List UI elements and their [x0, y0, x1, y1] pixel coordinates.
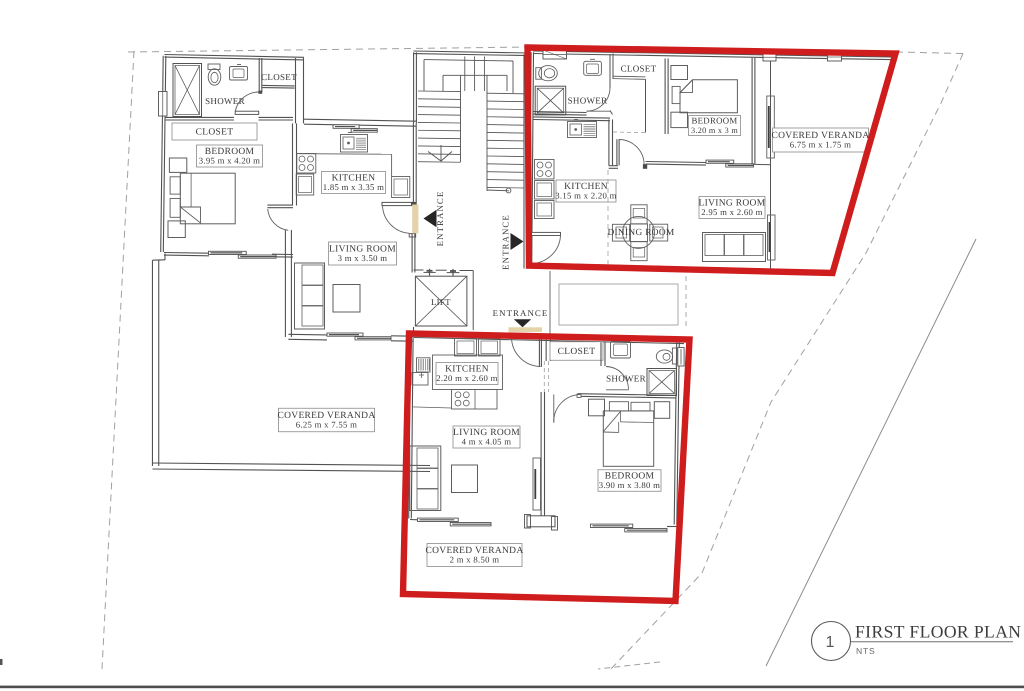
svg-text:3.15 m x 2.20 m: 3.15 m x 2.20 m [555, 191, 616, 201]
svg-text:1.85 m x 3.35 m: 1.85 m x 3.35 m [323, 182, 384, 192]
svg-text:SHOWER: SHOWER [205, 96, 245, 106]
svg-text:2.20 m x 2.60 m: 2.20 m x 2.60 m [436, 373, 497, 383]
svg-text:6.25 m x 7.55 m: 6.25 m x 7.55 m [296, 420, 357, 430]
svg-text:3.20 m x 3 m: 3.20 m x 3 m [691, 126, 738, 135]
svg-text:ENTRANCE: ENTRANCE [493, 308, 549, 318]
svg-text:6.75 m x 1.75 m: 6.75 m x 1.75 m [790, 140, 851, 150]
svg-text:CLOSET: CLOSET [558, 347, 596, 357]
svg-text:2 m x 8.50 m: 2 m x 8.50 m [450, 555, 500, 565]
svg-text:CLOSET: CLOSET [261, 72, 297, 82]
svg-text:4 m x 4.05 m: 4 m x 4.05 m [462, 437, 512, 447]
svg-text:3.95 m x 4.20 m: 3.95 m x 4.20 m [199, 156, 260, 166]
svg-text:DINING ROOM: DINING ROOM [607, 228, 674, 238]
svg-text:BEDROOM: BEDROOM [691, 115, 737, 125]
svg-text:FIRST FLOOR PLAN: FIRST FLOOR PLAN [855, 622, 1021, 642]
svg-text:CLOSET: CLOSET [196, 128, 234, 138]
svg-text:ENTRANCE: ENTRANCE [501, 214, 511, 270]
svg-text:CLOSET: CLOSET [621, 64, 657, 74]
svg-text:SHOWER: SHOWER [568, 96, 608, 106]
svg-text:2.95 m x 2.60 m: 2.95 m x 2.60 m [701, 207, 762, 217]
svg-text:1: 1 [826, 634, 835, 651]
svg-text:ENTRANCE: ENTRANCE [435, 191, 445, 247]
svg-text:NTS: NTS [856, 646, 876, 656]
svg-text:3 m x 3.50 m: 3 m x 3.50 m [338, 253, 388, 263]
svg-text:LIFT: LIFT [431, 297, 451, 307]
svg-text:3.90 m x 3.80 m: 3.90 m x 3.80 m [599, 480, 660, 490]
